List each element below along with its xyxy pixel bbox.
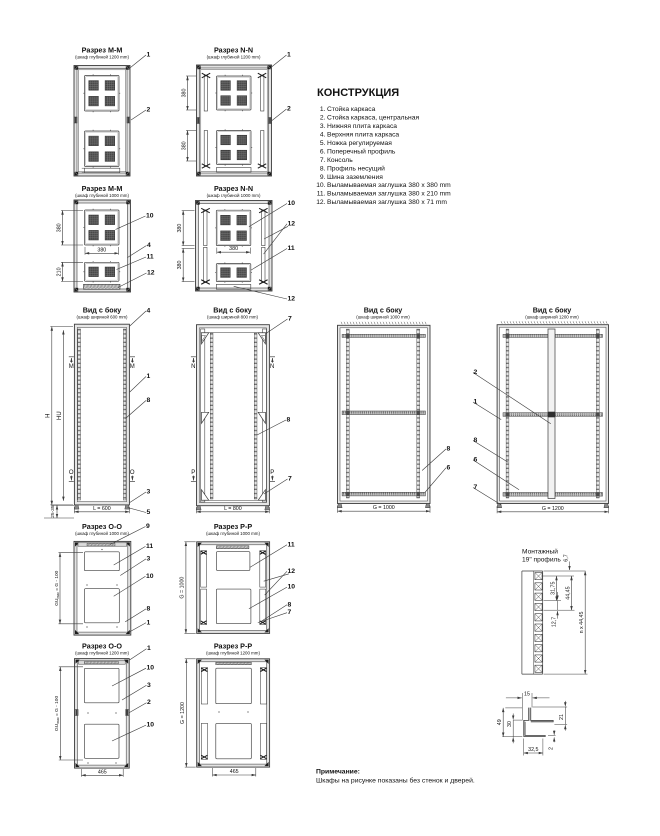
svg-text:11: 11 bbox=[147, 254, 154, 261]
svg-text:G = 1200: G = 1200 bbox=[180, 702, 186, 724]
svg-text:11.: 11. bbox=[317, 191, 326, 198]
svg-text:Ножка регулируемая: Ножка регулируемая bbox=[327, 140, 392, 147]
svg-text:10: 10 bbox=[288, 584, 296, 591]
svg-text:4.: 4. bbox=[320, 132, 326, 139]
svg-text:2.: 2. bbox=[320, 115, 326, 122]
svg-text:7: 7 bbox=[288, 609, 292, 616]
svg-text:GUmax = G - 100: GUmax = G - 100 bbox=[54, 696, 60, 731]
svg-text:G = 1000: G = 1000 bbox=[180, 577, 186, 599]
svg-text:8: 8 bbox=[147, 605, 151, 612]
svg-text:GUmax = G - 100: GUmax = G - 100 bbox=[54, 570, 60, 605]
svg-text:11: 11 bbox=[146, 543, 153, 550]
svg-text:Профиль несущий: Профиль несущий bbox=[327, 164, 385, 172]
svg-text:6: 6 bbox=[447, 464, 451, 471]
svg-text:Нижняя плита каркаса: Нижняя плита каркаса bbox=[327, 123, 397, 130]
svg-text:Верхняя плита каркаса: Верхняя плита каркаса bbox=[327, 132, 399, 139]
svg-text:(шкаф шириной 600 mm): (шкаф шириной 600 mm) bbox=[76, 314, 128, 319]
svg-text:5: 5 bbox=[147, 509, 151, 516]
svg-text:12: 12 bbox=[288, 296, 296, 303]
svg-text:25-35: 25-35 bbox=[50, 505, 56, 518]
svg-text:Выламываемая заглушка 380 x 38: Выламываемая заглушка 380 x 380 mm bbox=[327, 182, 451, 189]
svg-text:1: 1 bbox=[474, 399, 478, 406]
svg-text:(шкаф глубиной 1000 mm): (шкаф глубиной 1000 mm) bbox=[75, 531, 129, 536]
svg-text:3.: 3. bbox=[320, 123, 326, 130]
svg-text:P: P bbox=[191, 470, 195, 476]
svg-text:8: 8 bbox=[447, 446, 451, 453]
svg-text:КОНСТРУКЦИЯ: КОНСТРУКЦИЯ bbox=[317, 87, 399, 99]
svg-text:Консоль: Консоль bbox=[327, 157, 353, 164]
svg-text:12.: 12. bbox=[316, 199, 325, 206]
svg-text:12: 12 bbox=[288, 568, 296, 575]
svg-text:1: 1 bbox=[147, 645, 151, 652]
svg-text:L = 800: L = 800 bbox=[224, 506, 242, 512]
svg-text:6: 6 bbox=[474, 456, 478, 463]
svg-text:(шкаф шириной 1200 mm): (шкаф шириной 1200 mm) bbox=[525, 314, 579, 319]
svg-text:Монтажный: Монтажный bbox=[522, 548, 558, 556]
svg-text:12,7: 12,7 bbox=[551, 617, 557, 627]
svg-text:19" профиль: 19" профиль bbox=[522, 557, 561, 564]
svg-text:P: P bbox=[270, 470, 274, 476]
svg-text:(шкаф глубиной 1000 mm): (шкаф глубиной 1000 mm) bbox=[207, 193, 261, 198]
svg-text:465: 465 bbox=[230, 769, 239, 775]
svg-text:(шкаф глубиной 1200 mm): (шкаф глубиной 1200 mm) bbox=[207, 55, 261, 60]
svg-text:8: 8 bbox=[287, 417, 291, 424]
svg-text:(шкаф шириной 1000 mm): (шкаф шириной 1000 mm) bbox=[356, 314, 410, 319]
svg-text:380: 380 bbox=[229, 246, 238, 252]
svg-text:465: 465 bbox=[98, 769, 107, 775]
svg-text:Вид с боку: Вид с боку bbox=[533, 305, 572, 314]
svg-text:Стойка каркаса, центральная: Стойка каркаса, центральная bbox=[327, 114, 419, 122]
svg-text:Стойка каркаса: Стойка каркаса bbox=[327, 105, 376, 113]
svg-text:Разрез O-O: Разрез O-O bbox=[82, 642, 122, 651]
svg-text:3: 3 bbox=[147, 489, 151, 496]
svg-text:8: 8 bbox=[288, 601, 292, 608]
svg-text:G = 1200: G = 1200 bbox=[542, 506, 564, 512]
svg-text:Разрез N-N: Разрез N-N bbox=[214, 46, 253, 55]
svg-text:L = 600: L = 600 bbox=[93, 506, 111, 512]
svg-text:N: N bbox=[191, 364, 195, 370]
svg-text:5.: 5. bbox=[320, 140, 326, 147]
svg-text:H: H bbox=[46, 414, 52, 418]
svg-text:2: 2 bbox=[147, 699, 151, 706]
svg-text:Примечание:: Примечание: bbox=[316, 769, 360, 776]
svg-text:O: O bbox=[69, 470, 74, 476]
svg-text:380: 380 bbox=[181, 141, 187, 150]
svg-text:44,45: 44,45 bbox=[565, 586, 571, 599]
svg-text:7: 7 bbox=[288, 476, 292, 483]
svg-text:HU: HU bbox=[57, 411, 63, 420]
svg-text:12: 12 bbox=[147, 270, 155, 277]
svg-text:15: 15 bbox=[524, 691, 530, 697]
svg-text:3: 3 bbox=[147, 682, 151, 689]
svg-text:10: 10 bbox=[147, 722, 155, 729]
svg-text:3: 3 bbox=[147, 555, 151, 562]
svg-text:8: 8 bbox=[147, 397, 151, 404]
svg-text:210: 210 bbox=[56, 267, 62, 276]
svg-text:7: 7 bbox=[474, 484, 478, 491]
svg-text:O: O bbox=[130, 470, 135, 476]
svg-text:(шкаф шириной 800 mm): (шкаф шириной 800 mm) bbox=[207, 314, 259, 319]
svg-text:4: 4 bbox=[147, 242, 151, 249]
svg-text:10.: 10. bbox=[316, 182, 325, 189]
svg-text:2: 2 bbox=[287, 106, 291, 113]
svg-text:11: 11 bbox=[288, 245, 295, 252]
svg-text:380: 380 bbox=[56, 223, 62, 232]
svg-text:380: 380 bbox=[177, 224, 183, 233]
svg-text:M: M bbox=[69, 364, 74, 370]
svg-text:32,5: 32,5 bbox=[528, 747, 538, 753]
svg-text:6.: 6. bbox=[320, 148, 326, 155]
svg-text:8: 8 bbox=[474, 437, 478, 444]
svg-text:Вид с боку: Вид с боку bbox=[364, 305, 403, 314]
svg-text:9.: 9. bbox=[320, 174, 326, 181]
svg-text:8.: 8. bbox=[320, 165, 326, 172]
svg-text:9: 9 bbox=[146, 523, 150, 530]
svg-text:Разрез P-P: Разрез P-P bbox=[214, 522, 253, 531]
svg-text:6,7: 6,7 bbox=[563, 554, 569, 561]
svg-text:1: 1 bbox=[147, 373, 151, 380]
svg-text:10: 10 bbox=[146, 213, 154, 220]
svg-text:7: 7 bbox=[288, 316, 292, 323]
svg-text:(шкаф глубиной 1000 mm): (шкаф глубиной 1000 mm) bbox=[206, 531, 260, 536]
svg-text:(шкаф глубиной 1200 mm): (шкаф глубиной 1200 mm) bbox=[206, 651, 260, 656]
svg-text:10: 10 bbox=[288, 200, 296, 207]
svg-text:30: 30 bbox=[507, 721, 513, 727]
svg-text:7.: 7. bbox=[320, 157, 326, 164]
svg-text:49: 49 bbox=[497, 719, 503, 725]
svg-text:1: 1 bbox=[147, 619, 151, 626]
svg-text:Разрез O-O: Разрез O-O bbox=[82, 522, 122, 531]
svg-text:10: 10 bbox=[147, 665, 155, 672]
svg-text:Вид с боку: Вид с боку bbox=[83, 305, 122, 314]
svg-text:Шкафы на рисунке показаны без: Шкафы на рисунке показаны без стенок и д… bbox=[316, 777, 475, 785]
svg-text:Разрез N-N: Разрез N-N bbox=[214, 184, 253, 193]
svg-text:Разрез P-P: Разрез P-P bbox=[214, 642, 253, 651]
svg-text:Выламываемая заглушка 380 x 21: Выламываемая заглушка 380 x 210 mm bbox=[327, 191, 451, 198]
svg-text:12: 12 bbox=[288, 220, 296, 227]
svg-text:4: 4 bbox=[147, 308, 151, 315]
svg-text:Шина заземления: Шина заземления bbox=[327, 174, 383, 181]
svg-text:21: 21 bbox=[559, 714, 565, 720]
svg-text:2: 2 bbox=[474, 369, 478, 376]
svg-text:(шкаф глубиной 1000 mm): (шкаф глубиной 1000 mm) bbox=[75, 193, 129, 198]
svg-text:11: 11 bbox=[288, 541, 295, 548]
svg-text:G = 1000: G = 1000 bbox=[373, 505, 395, 511]
svg-text:1: 1 bbox=[287, 52, 291, 59]
svg-text:M: M bbox=[130, 364, 135, 370]
svg-text:Разрез M-M: Разрез M-M bbox=[82, 46, 123, 55]
svg-text:N: N bbox=[270, 364, 274, 370]
svg-text:1: 1 bbox=[147, 52, 151, 59]
svg-text:Вид с боку: Вид с боку bbox=[213, 305, 252, 314]
svg-text:380: 380 bbox=[97, 247, 106, 253]
svg-text:n x 44,45: n x 44,45 bbox=[579, 612, 585, 634]
svg-text:(шкаф глубиной 1200 mm): (шкаф глубиной 1200 mm) bbox=[75, 651, 129, 656]
svg-text:1.: 1. bbox=[320, 106, 326, 113]
svg-text:Разрез M-M: Разрез M-M bbox=[82, 184, 123, 193]
svg-text:380: 380 bbox=[177, 261, 183, 270]
svg-text:Выламываемая заглушка 380 x 71: Выламываемая заглушка 380 x 71 mm bbox=[327, 199, 447, 206]
svg-text:Поперечный профиль: Поперечный профиль bbox=[327, 147, 396, 155]
svg-text:10: 10 bbox=[146, 573, 154, 580]
svg-text:380: 380 bbox=[181, 89, 187, 98]
svg-text:31,75: 31,75 bbox=[550, 582, 556, 595]
svg-text:2: 2 bbox=[147, 107, 151, 114]
svg-text:(шкаф глубиной 1200 mm): (шкаф глубиной 1200 mm) bbox=[75, 55, 129, 60]
svg-text:2: 2 bbox=[549, 747, 555, 750]
